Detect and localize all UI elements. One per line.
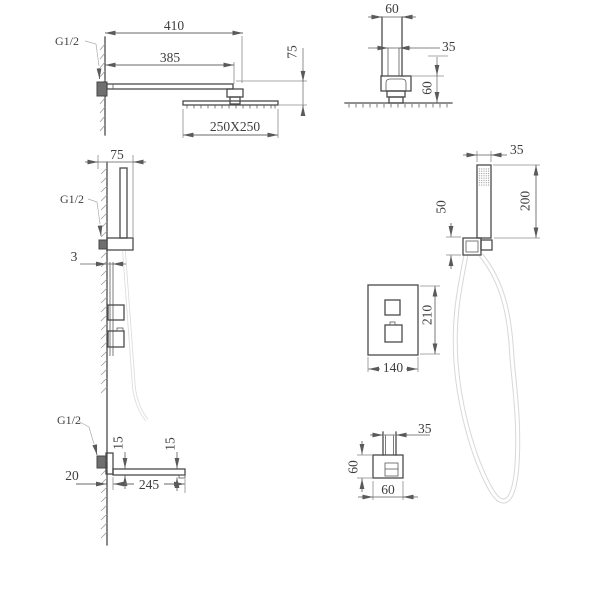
dimension-label-35: 35 — [418, 421, 432, 436]
hand-shower-handle-side — [120, 168, 127, 238]
dimension-label-60-height: 60 — [420, 81, 435, 95]
hand-shower-handle — [477, 165, 491, 238]
wall-outlet-front-view: 35 60 60 — [346, 421, 432, 500]
hose-loop — [455, 255, 518, 501]
hand-shower-front-view: 35 200 50 — [434, 142, 541, 501]
shower-head-front — [345, 103, 452, 108]
holder-bracket-side — [107, 238, 133, 250]
dimension-label-75: 75 — [110, 147, 124, 162]
dimension-label-60-height: 60 — [346, 460, 361, 474]
dimension-label-410: 410 — [164, 18, 185, 33]
wall-hatching — [101, 168, 107, 538]
shower-arm — [107, 84, 233, 89]
dimension-label-200: 200 — [518, 191, 533, 212]
spout-side-view: G1/2 15 15 20 245 — [57, 413, 185, 493]
valve-knob-top — [385, 300, 400, 315]
overhead-shower-side-view: 410 385 75 250X250 G1/2 — [55, 18, 307, 138]
outlet-escutcheon — [373, 455, 403, 478]
dimension-label-140: 140 — [383, 360, 404, 375]
dimension-label-50: 50 — [434, 200, 449, 214]
thread-label: G1/2 — [57, 413, 81, 427]
wall-union — [97, 82, 107, 96]
ceiling-flange — [381, 76, 411, 103]
dimension-label-35: 35 — [510, 142, 524, 157]
dimension-label-60-width: 60 — [385, 1, 399, 16]
thread-label: G1/2 — [60, 192, 84, 206]
leader-line — [88, 199, 100, 224]
hand-shower-side-view: 75 G1/2 3 — [60, 147, 147, 545]
trim-plate-edge — [110, 262, 113, 356]
outlet-pipe — [383, 432, 396, 455]
valve-front-view: 210 140 — [368, 285, 440, 375]
dimension-label-15-inner: 15 — [111, 436, 126, 450]
nozzle-ticks — [349, 104, 447, 108]
spout-bar — [113, 469, 185, 475]
dimension-label-15-tip: 15 — [163, 437, 178, 451]
leader-line — [85, 41, 99, 66]
dimension-label-60-width: 60 — [381, 482, 395, 497]
valve-knob-bottom — [385, 325, 402, 342]
dimension-label-385: 385 — [160, 50, 181, 65]
wall-union — [97, 456, 106, 468]
hose-side — [124, 251, 147, 420]
wall-nub — [99, 240, 107, 249]
overhead-shower-front-view: 60 35 60 — [345, 1, 456, 108]
dimension-label-210: 210 — [420, 305, 435, 326]
outlet-connector — [385, 463, 398, 476]
dimension-label-35: 35 — [442, 39, 456, 54]
arm-connector — [227, 89, 243, 104]
shower-dimension-drawing: 410 385 75 250X250 G1/2 — [0, 0, 600, 600]
holder-bracket — [463, 238, 492, 255]
valve-plate — [368, 285, 418, 355]
dimension-label-head-size: 250X250 — [210, 119, 260, 134]
spray-face — [479, 168, 490, 187]
dimension-label-245: 245 — [139, 477, 160, 492]
dimension-label-75: 75 — [285, 45, 300, 59]
dimension-label-20: 20 — [65, 468, 79, 483]
thread-label: G1/2 — [55, 34, 79, 48]
ceiling-pipe — [382, 17, 402, 76]
dimension-label-3: 3 — [71, 249, 78, 264]
